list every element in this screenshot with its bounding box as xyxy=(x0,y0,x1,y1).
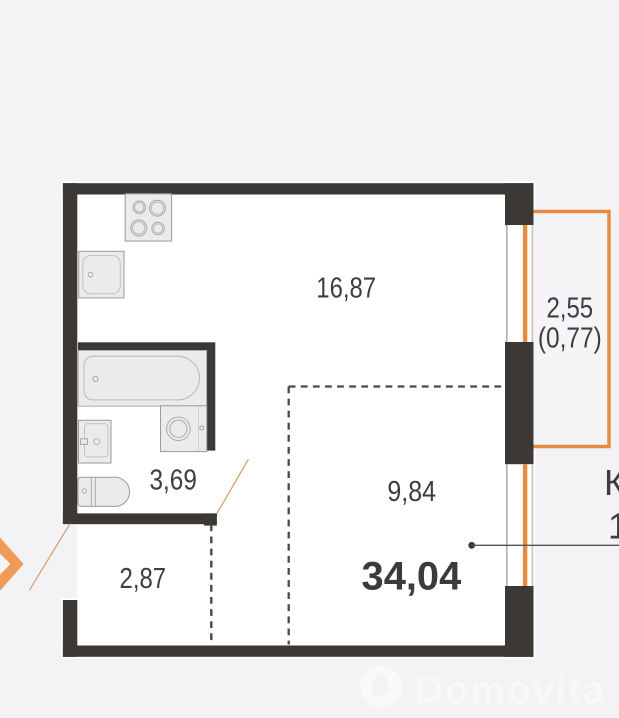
svg-text:2,87: 2,87 xyxy=(120,563,167,595)
svg-text:Domovita: Domovita xyxy=(415,669,606,712)
svg-text:16,87: 16,87 xyxy=(608,506,619,547)
svg-text:2,55: 2,55 xyxy=(546,292,593,324)
svg-text:3,69: 3,69 xyxy=(150,464,197,496)
svg-text:34,04: 34,04 xyxy=(362,555,462,599)
svg-text:Кухня: Кухня xyxy=(604,462,619,503)
svg-text:(0,77): (0,77) xyxy=(538,323,602,355)
svg-text:9,84: 9,84 xyxy=(387,476,436,508)
svg-text:16,87: 16,87 xyxy=(316,272,376,304)
